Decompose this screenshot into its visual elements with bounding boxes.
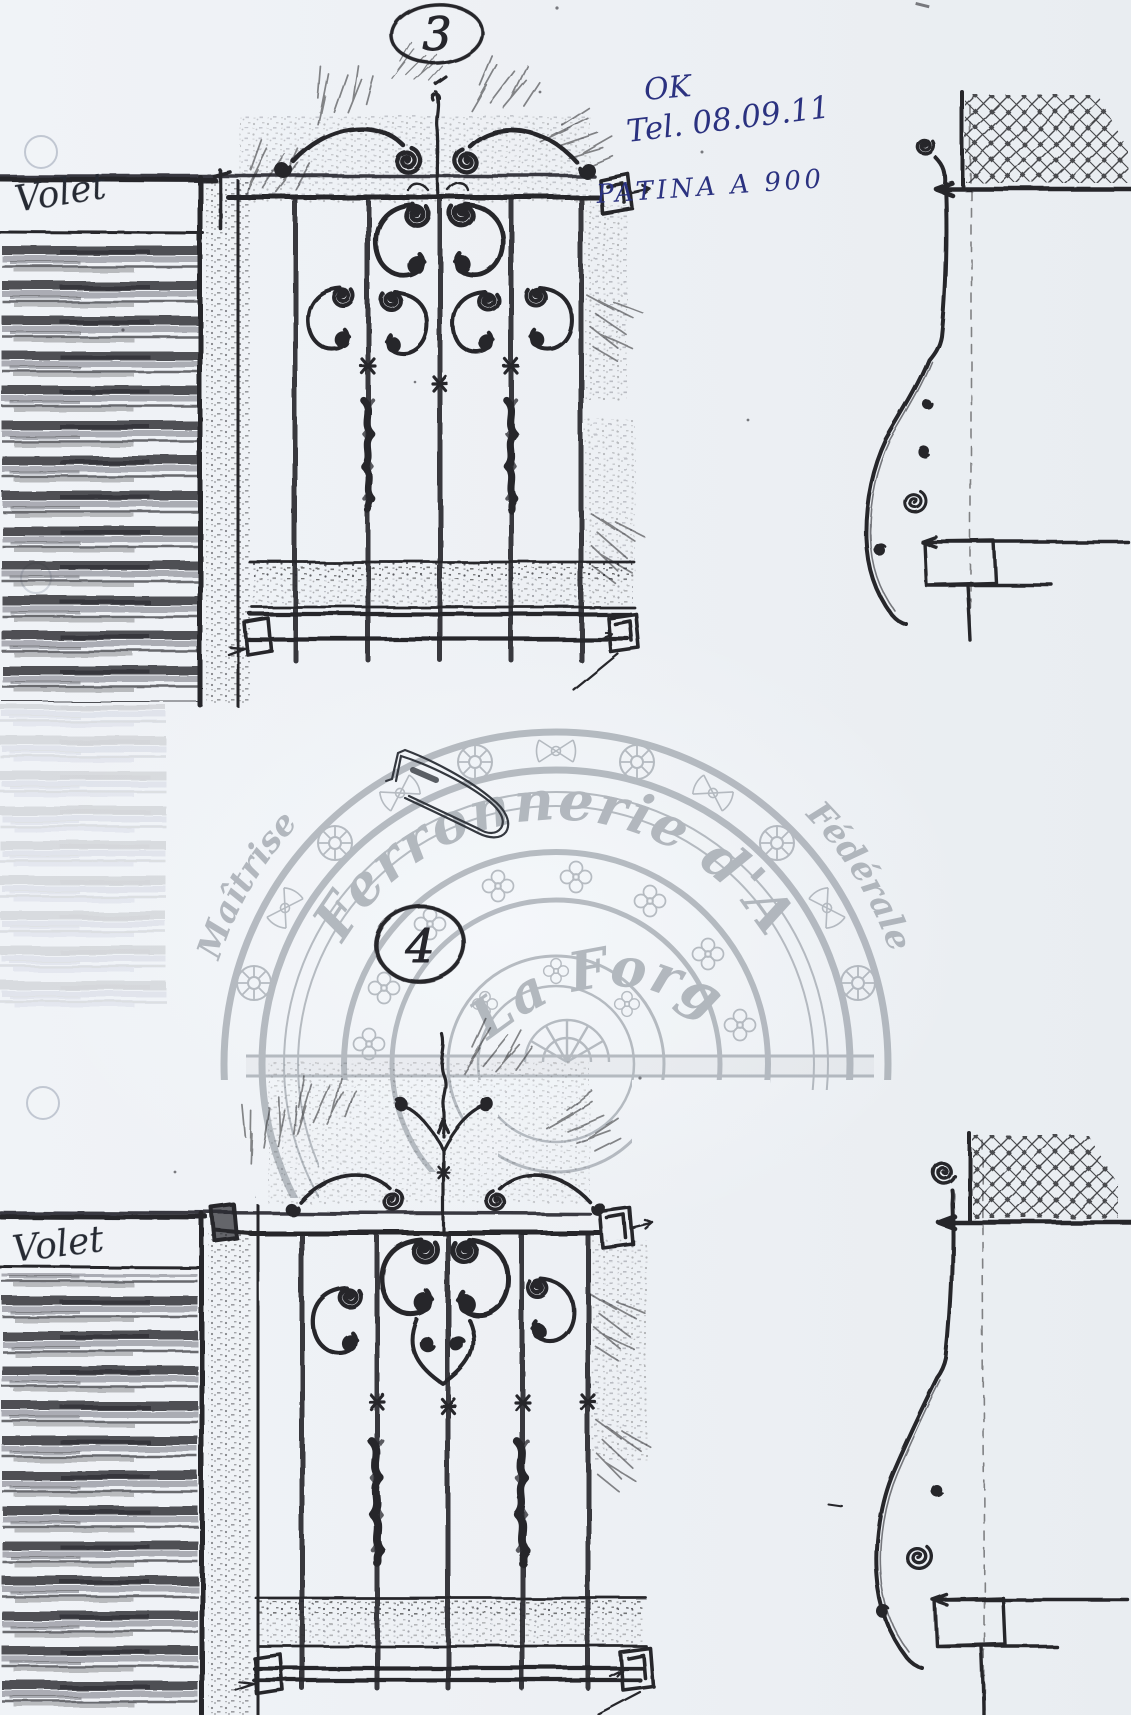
punch-hole: [25, 136, 57, 168]
design-number-4-label: 4: [404, 919, 434, 973]
wall-crosshatch: [966, 95, 1128, 183]
profile-view-bottom: [828, 1133, 1131, 1715]
ink-annotations: OK Tel. 08.09.11 PATINA A 900: [594, 69, 831, 210]
sill-bracket: [922, 537, 1128, 641]
scroll-motif: [378, 288, 427, 353]
shutter-slats-bottom: [2, 1274, 198, 1715]
wall-crosshatch: [972, 1135, 1118, 1218]
profile-scroll: [901, 486, 929, 515]
sill-band: [256, 1598, 646, 1646]
scroll-motif: [313, 1284, 365, 1352]
center-axis-dashed: [982, 1140, 985, 1715]
bar-twist: [372, 1441, 383, 1563]
wall-line-horizontal: [936, 183, 1131, 195]
scroll-motif: [375, 200, 433, 276]
sill-bracket: [933, 1595, 1128, 1715]
scroll-motif: [448, 1235, 508, 1314]
profile-scroll: [924, 401, 933, 409]
scroll-motif: [453, 288, 502, 353]
anchor-arrow: [598, 1668, 640, 1714]
grille-front-view-3: [214, 41, 652, 690]
shutter-slats-top-faded: [0, 705, 166, 1010]
scroll-motif: [308, 284, 357, 349]
scroll-motif: [445, 200, 503, 276]
scroll-motif: [523, 284, 572, 349]
scroll-motif: [525, 1276, 574, 1341]
profile-scroll: [930, 1484, 944, 1497]
wall-edge-hatching-bottom: [208, 1207, 259, 1715]
panel-scroll-motifs: [313, 1235, 574, 1384]
sill-band: [250, 562, 634, 607]
design-number-3-label: 3: [422, 7, 451, 61]
shutter-label-bottom: Volet: [10, 1219, 106, 1271]
bar-twist: [363, 400, 373, 510]
punch-hole: [27, 1087, 59, 1119]
scroll-knob: [916, 136, 938, 157]
scroll-motif: [413, 1320, 474, 1384]
shutter-label-top: Volet: [12, 166, 109, 221]
approval-note: OK: [643, 69, 694, 108]
profile-view-top: [866, 93, 1131, 641]
patina-note: PATINA A 900: [594, 164, 825, 210]
scroll-motif: [382, 1235, 442, 1314]
profile-scroll: [873, 542, 887, 556]
scroll-knob: [930, 1160, 957, 1186]
grille-front-view-4: [212, 1011, 654, 1714]
bar-twist: [517, 1441, 528, 1563]
bar-twist: [506, 400, 516, 510]
wall-anchor-plate: [608, 614, 639, 652]
profile-scroll: [918, 445, 932, 459]
anchor-arrow: [633, 1220, 653, 1229]
profile-scroll: [904, 1540, 937, 1573]
scanned-ironwork-sketch-page: Volet 3: [0, 0, 1131, 1715]
sketch-canvas: Volet 3: [0, 0, 1131, 1715]
wall-anchor-plate: [212, 1205, 237, 1241]
shutter-slats-top: [2, 240, 198, 702]
